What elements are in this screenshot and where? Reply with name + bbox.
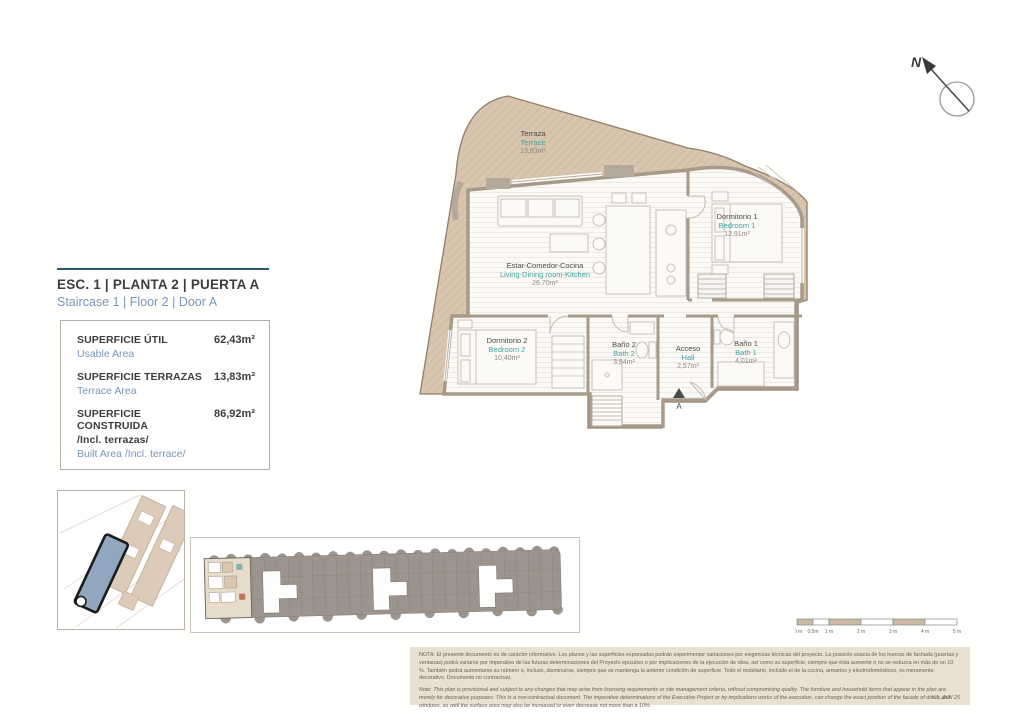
- area-row-built: SUPERFICIE CONSTRUIDA 86,92m² /Incl. ter…: [77, 408, 255, 460]
- building-strip-plan: [190, 537, 580, 633]
- scale-tick: 1 m: [825, 629, 833, 635]
- building-strip-drawing: [191, 538, 579, 632]
- north-arrow: N: [905, 45, 990, 125]
- area-label-es: SUPERFICIE ÚTIL: [77, 334, 168, 346]
- page-title: ESC. 1 | PLANTA 2 | PUERTA A: [57, 277, 259, 292]
- site-key-plan-drawing: [58, 491, 184, 629]
- compass-needle: [930, 68, 969, 111]
- plan-sheet: N: [0, 0, 1024, 724]
- area-label-en: Usable Area: [77, 348, 255, 360]
- area-value: 86,92m²: [214, 408, 255, 420]
- version-label: V.1_JUN 25: [931, 695, 960, 701]
- scale-tick: 3 m: [889, 629, 897, 635]
- scale-tick: 0,5m: [807, 629, 818, 635]
- area-row-terrace: SUPERFICIE TERRAZAS 13,83m² Terrace Area: [77, 371, 255, 397]
- disclaimer-note-en: Note: This plan is provisional and subje…: [419, 687, 961, 710]
- title-rule: [57, 268, 269, 270]
- building-mass: [204, 545, 563, 624]
- bedroom1-furniture: [712, 192, 782, 274]
- scale-bar-labels: 0 m 0,5m 1 m 2 m 3 m 4 m 5 m: [795, 629, 961, 635]
- scale-tick: 2 m: [857, 629, 865, 635]
- scale-tick: 4 m: [921, 629, 929, 635]
- disclaimer-note-es: NOTA: El presente documento es de caráct…: [419, 652, 961, 683]
- area-label-es: SUPERFICIE CONSTRUIDA: [77, 408, 214, 432]
- scale-bar: 0 m 0,5m 1 m 2 m 3 m 4 m 5 m: [795, 616, 967, 638]
- area-label-en: Built Area /Incl. terrace/: [77, 448, 255, 460]
- scale-tick: 0 m: [795, 629, 802, 635]
- area-label-es: SUPERFICIE TERRAZAS: [77, 371, 202, 383]
- area-label-en: Terrace Area: [77, 385, 255, 397]
- scale-tick: 5 m: [953, 629, 961, 635]
- area-value: 62,43m²: [214, 334, 255, 346]
- site-key-plan: [57, 490, 185, 630]
- north-label: N: [911, 54, 922, 70]
- page-subtitle: Staircase 1 | Floor 2 | Door A: [57, 295, 217, 309]
- disclaimer-box: NOTA: El presente documento es de caráct…: [410, 647, 970, 705]
- area-summary-box: SUPERFICIE ÚTIL 62,43m² Usable Area SUPE…: [60, 320, 270, 470]
- area-label-es2: /Incl. terrazas/: [77, 434, 255, 446]
- highlighted-unit: [204, 558, 252, 619]
- floor-plan-drawing: A: [400, 78, 820, 430]
- area-value: 13,83m²: [214, 371, 255, 383]
- entrance-letter: A: [676, 402, 682, 411]
- stair-block: [592, 396, 622, 426]
- area-row-usable: SUPERFICIE ÚTIL 62,43m² Usable Area: [77, 334, 255, 360]
